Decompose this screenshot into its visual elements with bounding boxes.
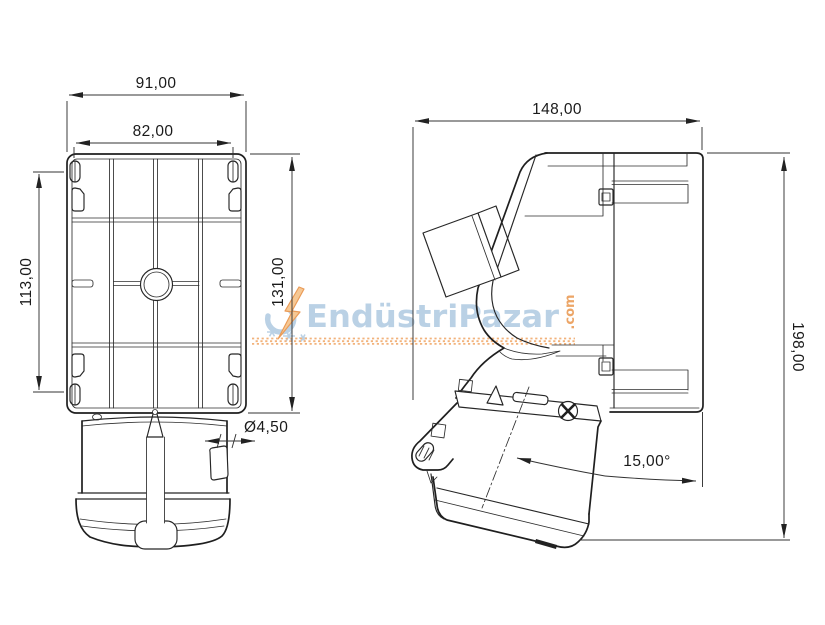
hinge-hook — [412, 403, 457, 519]
watermark-brand-text: EndüstriPazar — [306, 299, 560, 335]
rim-tab-mark — [535, 539, 557, 549]
dim-height-left: 113,00 — [18, 258, 35, 307]
screw-icon — [559, 402, 578, 421]
dim-width-inner: 82,00 — [133, 123, 174, 140]
tilted-head — [412, 379, 601, 549]
dim-height-right: 131,00 — [270, 257, 287, 307]
dim-hole-diameter: Ø4,50 — [244, 419, 288, 436]
front-view: 91,00 82,00 113,00 131,00 Ø4,50 — [18, 75, 300, 549]
plate-center-boss — [141, 269, 173, 301]
neck-drip-lip — [500, 348, 560, 360]
watermark: EndüstriPazar .com — [252, 287, 578, 344]
watermark-dotted-band — [252, 339, 575, 344]
mount-bracket-upper — [599, 181, 688, 205]
lid-cover — [433, 421, 601, 549]
cone-detail — [147, 412, 163, 437]
dim-depth: 148,00 — [532, 101, 582, 118]
mount-bracket-lower — [599, 358, 688, 393]
dim-width-outer: 91,00 — [136, 75, 177, 92]
socket-body-front — [76, 410, 230, 550]
body-side-latch-detail — [210, 446, 228, 480]
technical-drawing-page: EndüstriPazar .com — [0, 0, 825, 625]
wall-box-outline — [545, 153, 703, 412]
tilted-flange-box — [423, 206, 519, 297]
watermark-tld-text: .com — [563, 294, 578, 329]
dim-height: 198,00 — [789, 322, 806, 372]
dim-angle: 15,00° — [623, 453, 670, 470]
base-tab — [135, 521, 177, 549]
drawing-canvas: EndüstriPazar .com — [0, 0, 825, 625]
